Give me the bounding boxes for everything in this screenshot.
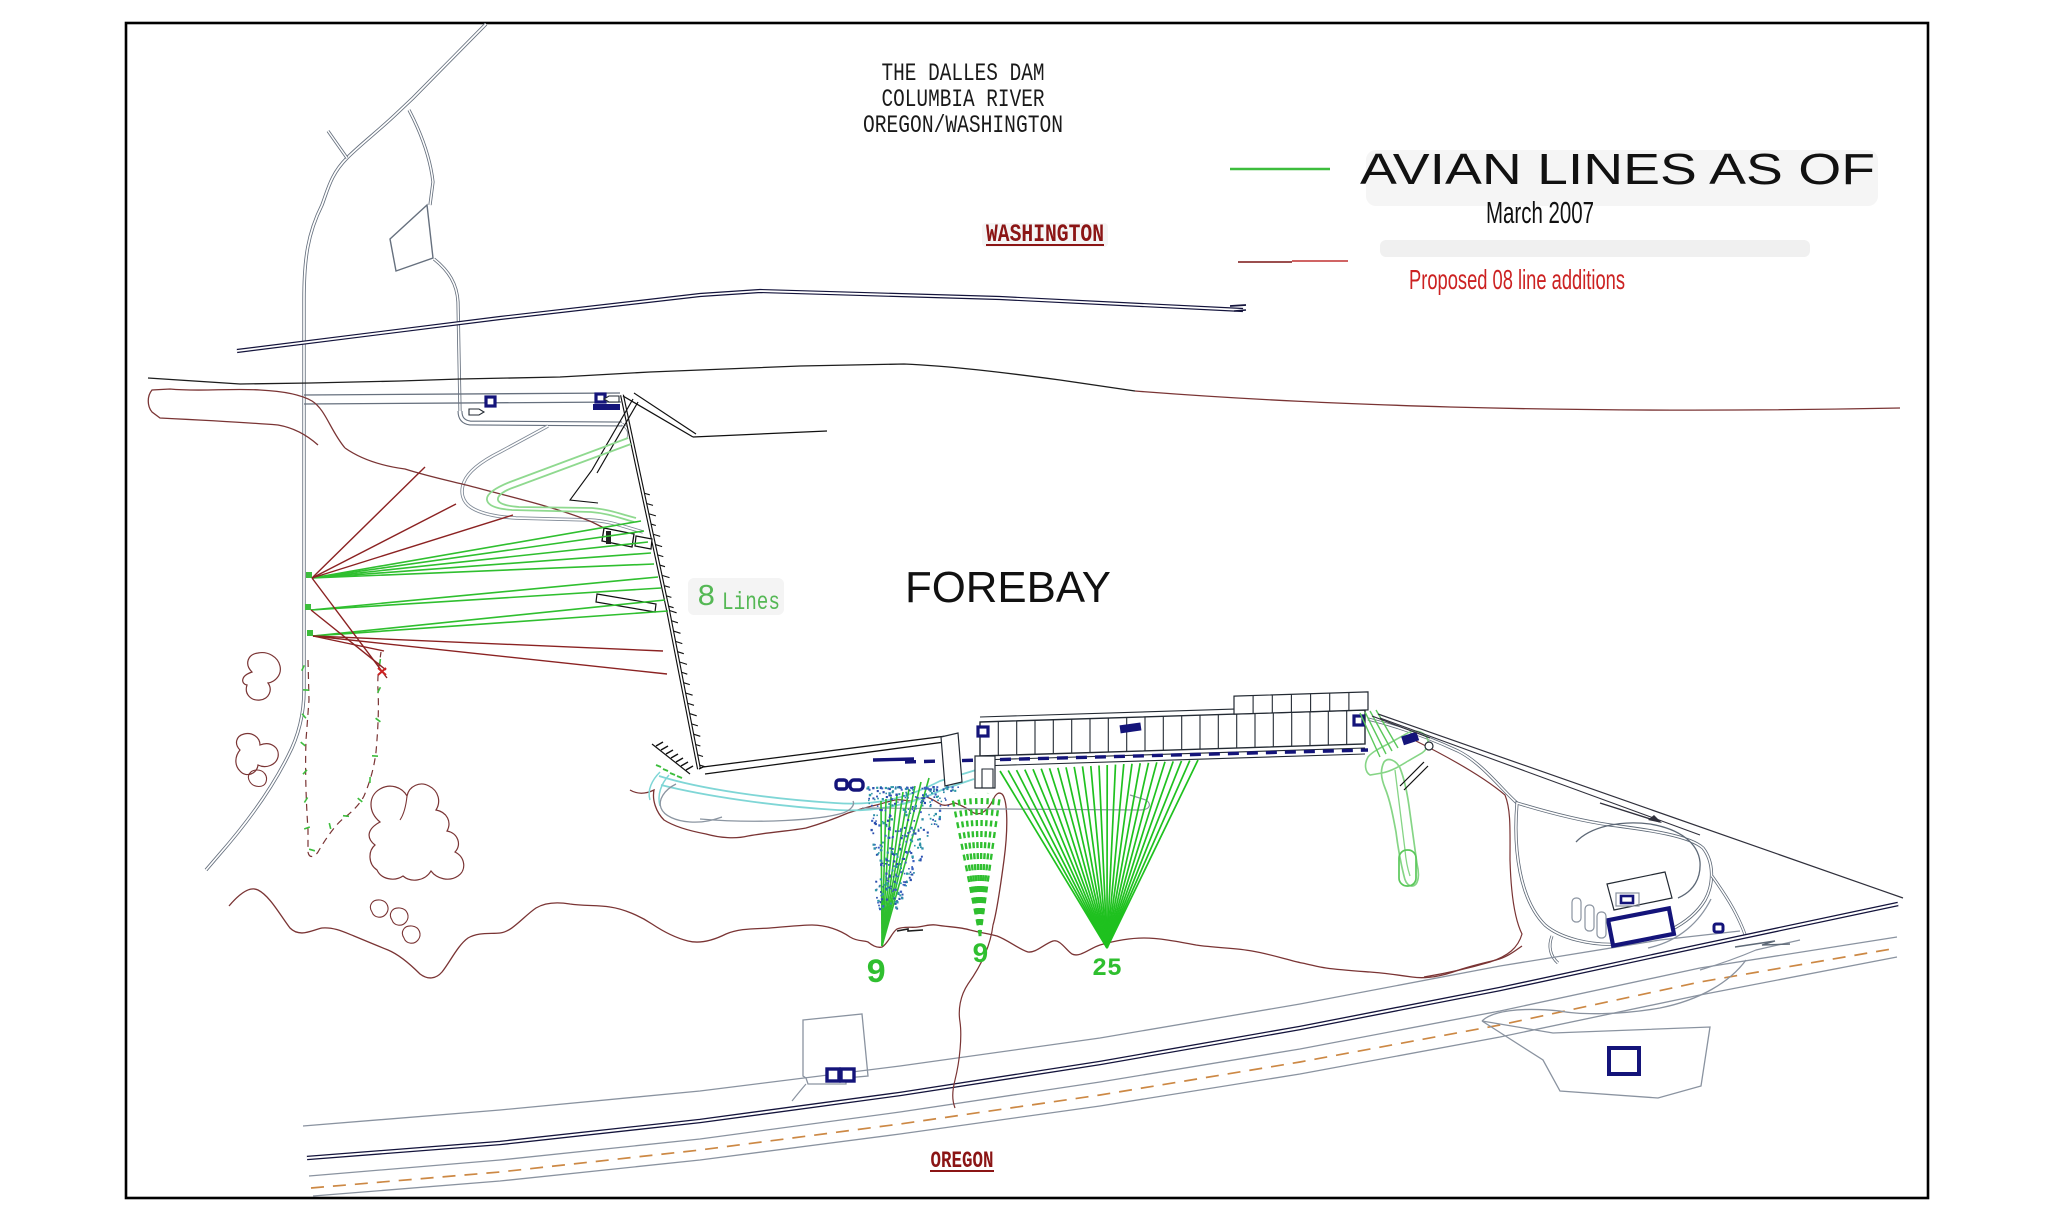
svg-text:THE DALLES DAM: THE DALLES DAM — [882, 59, 1045, 88]
svg-text:Proposed 08 line additions: Proposed 08 line additions — [1409, 264, 1625, 295]
svg-text:AVIAN LINES AS OF: AVIAN LINES AS OF — [1360, 145, 1875, 194]
svg-text:9: 9 — [866, 955, 886, 993]
svg-text:COLUMBIA RIVER: COLUMBIA RIVER — [882, 85, 1045, 114]
svg-text:8: 8 — [697, 580, 716, 615]
svg-text:25: 25 — [1092, 954, 1122, 983]
svg-text:OREGON/WASHINGTON: OREGON/WASHINGTON — [863, 111, 1063, 140]
svg-text:FOREBAY: FOREBAY — [905, 563, 1111, 612]
svg-text:9: 9 — [972, 940, 989, 971]
svg-text:Lines: Lines — [722, 588, 780, 617]
svg-text:March 2007: March 2007 — [1486, 195, 1594, 230]
